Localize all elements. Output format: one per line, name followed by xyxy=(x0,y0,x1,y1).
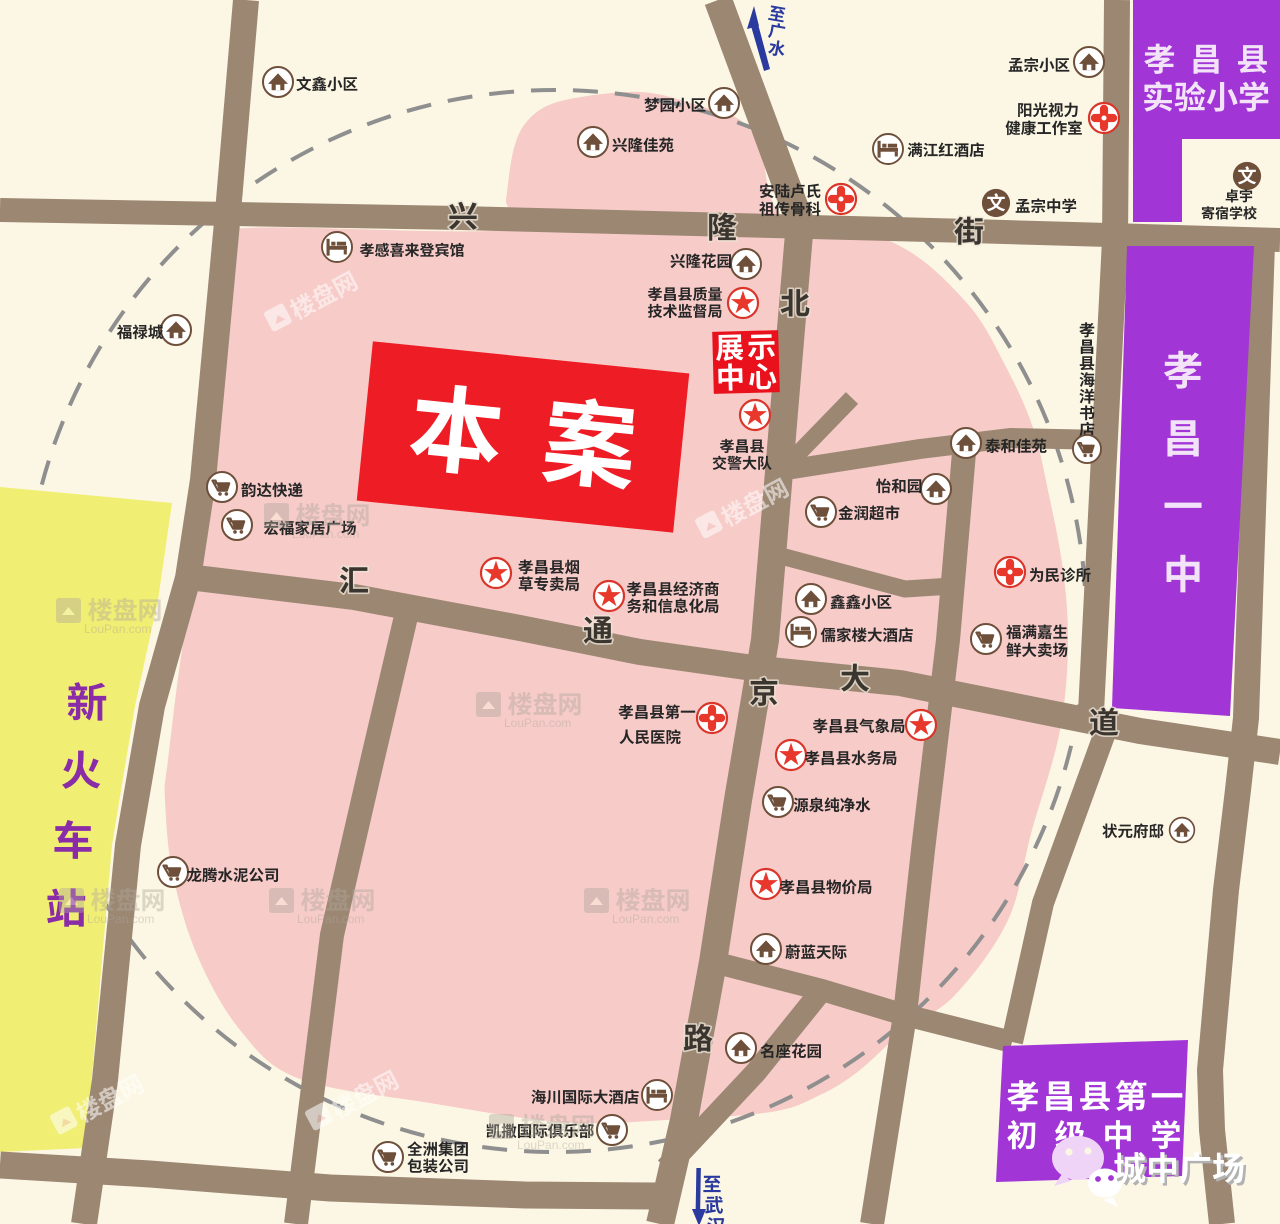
svg-text:LouPan.com: LouPan.com xyxy=(517,1138,584,1152)
svg-text:LouPan.com: LouPan.com xyxy=(612,912,679,926)
svg-text:LouPan.com: LouPan.com xyxy=(84,622,151,636)
svg-text:LouPan.com: LouPan.com xyxy=(504,716,571,730)
svg-text:LouPan.com: LouPan.com xyxy=(292,527,359,541)
svg-text:LouPan.com: LouPan.com xyxy=(87,912,154,926)
svg-text:LouPan.com: LouPan.com xyxy=(297,912,364,926)
